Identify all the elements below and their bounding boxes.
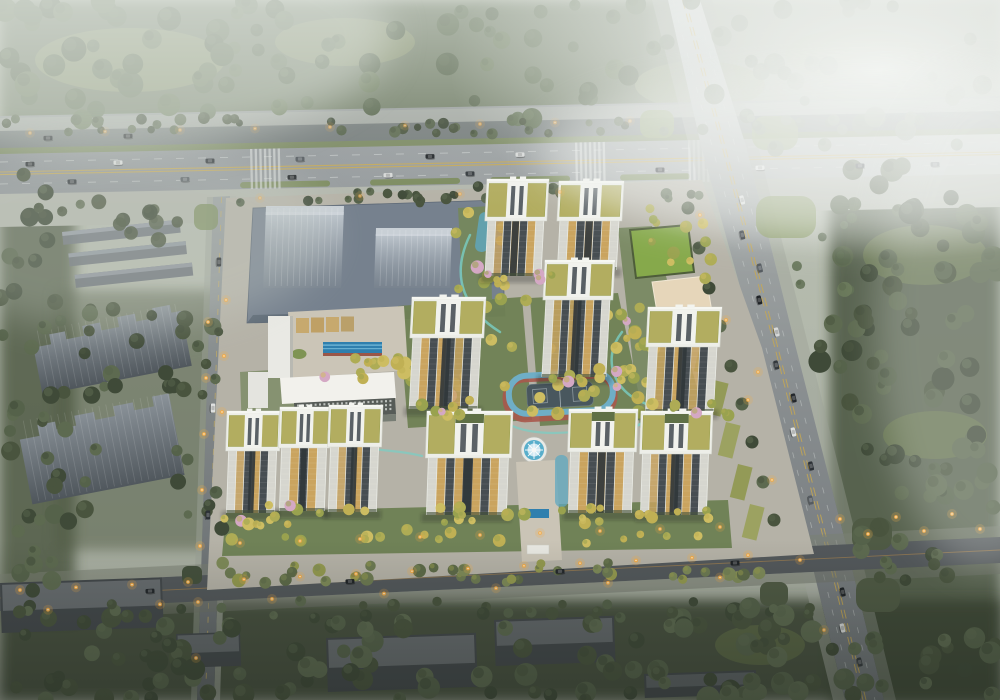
window — [341, 402, 343, 404]
window — [389, 408, 391, 410]
window — [376, 401, 378, 403]
tree-highlight — [35, 515, 41, 521]
streetlight-core — [839, 518, 840, 519]
tree-highlight — [379, 356, 385, 362]
tree-highlight — [59, 423, 67, 431]
tree-highlight — [528, 406, 534, 412]
crown-box — [358, 403, 364, 407]
tree-highlight — [896, 487, 903, 494]
tree-highlight — [80, 348, 86, 354]
tree-highlight — [23, 510, 30, 517]
tree-highlight — [872, 519, 882, 529]
tree-highlight — [227, 534, 233, 540]
dusk-vignette — [0, 540, 1000, 700]
tree-highlight — [854, 406, 864, 416]
roof-garden-dark — [592, 412, 615, 421]
tree-highlight — [501, 382, 506, 387]
crown-center — [244, 414, 263, 448]
tree-highlight — [722, 409, 726, 413]
aerial-render-stage — [0, 0, 1000, 700]
tree-highlight — [633, 392, 640, 399]
tree-highlight — [10, 401, 18, 409]
window — [319, 403, 321, 405]
tree-highlight — [881, 454, 887, 460]
tree-highlight — [199, 391, 204, 396]
tree-highlight — [402, 525, 408, 531]
tree-highlight — [624, 335, 628, 339]
tree-highlight — [5, 426, 11, 432]
window — [297, 405, 299, 407]
aerial-render — [0, 0, 1000, 700]
crown-box — [679, 409, 686, 413]
window — [363, 401, 365, 403]
streetlight-core — [747, 399, 748, 400]
roof-garden-panel — [312, 412, 328, 444]
tree-highlight — [579, 390, 585, 396]
tree-highlight — [236, 516, 242, 522]
window — [315, 404, 317, 406]
crown-box — [247, 409, 253, 413]
window — [389, 404, 391, 406]
window — [385, 404, 387, 406]
streetlight-core — [539, 532, 540, 533]
tree-highlight — [78, 502, 87, 511]
tree-highlight — [614, 383, 618, 387]
tree-highlight — [758, 477, 765, 484]
tree-highlight — [535, 393, 541, 399]
window — [372, 401, 374, 403]
streetlight-core — [207, 321, 208, 322]
tower-11 — [635, 409, 715, 523]
tree-highlight — [612, 367, 618, 373]
tower-9 — [421, 409, 515, 523]
crown-parapet — [641, 411, 713, 413]
tree-highlight — [675, 509, 679, 513]
tree-highlight — [703, 507, 707, 511]
window — [332, 403, 334, 405]
tree-highlight — [160, 366, 168, 374]
crown-slot — [472, 424, 479, 452]
streetlight-core — [203, 433, 204, 434]
tree-highlight — [59, 387, 65, 393]
tree-highlight — [553, 408, 560, 415]
window — [385, 400, 387, 402]
tree-highlight — [13, 526, 20, 533]
tree-highlight — [321, 372, 326, 377]
tree-highlight — [47, 506, 57, 516]
tree-highlight — [647, 399, 653, 405]
crown-box — [349, 403, 355, 407]
tree-highlight — [664, 533, 668, 537]
rooftop-lap-pool — [323, 342, 382, 353]
car — [204, 510, 210, 520]
tree-highlight — [183, 454, 189, 460]
tree-highlight — [559, 507, 563, 511]
tree-highlight — [466, 396, 471, 401]
central-fountain — [521, 437, 547, 463]
tree-highlight — [737, 399, 744, 406]
streetlight-core — [719, 526, 720, 527]
tree-highlight — [104, 366, 113, 375]
roof-garden-panel — [330, 410, 347, 443]
tree-highlight — [769, 515, 776, 522]
tree-highlight — [636, 511, 641, 516]
streetlight-core — [479, 534, 480, 535]
tower-8 — [323, 403, 385, 520]
tree-highlight — [630, 327, 637, 334]
tree-highlight — [211, 487, 217, 493]
tree-highlight — [193, 341, 199, 347]
roof-garden-panel — [261, 416, 278, 447]
streetlight-core — [419, 536, 420, 537]
roof-garden-panel — [483, 416, 510, 454]
crown-slot — [678, 424, 684, 448]
window — [323, 403, 325, 405]
tree-highlight — [253, 521, 257, 525]
crown-parapet — [280, 407, 331, 409]
tree-highlight — [81, 477, 87, 483]
base-shrubs — [226, 510, 274, 513]
tree-highlight — [726, 361, 733, 368]
tree-highlight — [85, 388, 94, 397]
crown-box — [594, 407, 601, 411]
tree-highlight — [442, 519, 446, 523]
streetlight-core — [201, 489, 202, 490]
streetlight-core — [221, 411, 222, 412]
tree-highlight — [282, 534, 286, 538]
streetlight-core — [599, 530, 600, 531]
streetlight-core — [659, 528, 660, 529]
tree-highlight — [417, 401, 422, 406]
tree-highlight — [704, 514, 709, 519]
tree-highlight — [211, 374, 216, 379]
tree-highlight — [508, 342, 513, 347]
tree-highlight — [835, 361, 842, 368]
tree-highlight — [316, 510, 320, 514]
amenity-wing-shadow — [290, 316, 293, 378]
window — [381, 400, 383, 402]
tree-highlight — [618, 376, 622, 380]
crown-box — [256, 409, 262, 413]
base-shrubs — [426, 512, 506, 515]
tree-highlight — [565, 371, 571, 377]
tree-highlight — [626, 365, 632, 371]
tree-highlight — [172, 446, 178, 452]
tree-highlight — [221, 515, 225, 519]
tree-highlight — [862, 444, 868, 450]
pool-lane — [323, 348, 382, 349]
tree-highlight — [519, 509, 525, 515]
roof-garden-dark — [665, 414, 689, 423]
tree-highlight — [439, 408, 443, 412]
tree-highlight — [185, 511, 189, 515]
tree-highlight — [576, 374, 580, 378]
tree-highlight — [52, 469, 60, 477]
roof-garden-panel — [642, 416, 665, 450]
tree-highlight — [376, 533, 381, 538]
tree-highlight — [587, 504, 592, 509]
crown-slot — [460, 424, 467, 452]
tree-highlight — [640, 338, 647, 345]
tree-highlight — [285, 521, 289, 525]
tree-highlight — [172, 475, 180, 483]
tree-highlight — [392, 357, 399, 364]
tree-highlight — [216, 522, 223, 529]
tree-highlight — [469, 517, 473, 521]
amenity-far-west-wing — [248, 372, 268, 408]
tree-highlight — [595, 364, 601, 370]
roof-garden-panel — [688, 416, 711, 450]
crown-center — [296, 410, 314, 445]
tree-highlight — [271, 512, 276, 517]
tree-highlight — [357, 369, 362, 374]
tree-highlight — [549, 375, 553, 379]
car-roof — [211, 406, 214, 410]
tree-highlight — [487, 335, 493, 341]
tree-highlight — [815, 341, 822, 348]
tree-highlight — [436, 536, 440, 540]
entry-water-feature — [555, 455, 568, 507]
tree-highlight — [647, 512, 653, 518]
tree-highlight — [100, 382, 105, 387]
car — [209, 403, 215, 413]
crown-box — [307, 405, 312, 409]
crown-box — [606, 407, 613, 411]
tower-10 — [563, 407, 640, 521]
tree-highlight — [843, 342, 853, 352]
tree-highlight — [109, 379, 117, 387]
window — [389, 400, 391, 402]
roof-garden-panel — [363, 410, 380, 443]
tree-highlight — [365, 359, 369, 363]
tree-highlight — [621, 536, 625, 540]
tree-highlight — [695, 532, 699, 536]
tree-highlight — [39, 412, 44, 417]
tree-highlight — [437, 504, 442, 509]
tree-highlight — [811, 352, 822, 363]
roof-garden-panel — [281, 412, 297, 444]
tree-highlight — [42, 452, 49, 459]
tree-highlight — [351, 354, 356, 359]
tree-highlight — [502, 509, 508, 515]
tree-highlight — [44, 388, 53, 397]
crown-parapet — [329, 405, 383, 407]
crown-parapet — [227, 411, 281, 413]
tree-highlight — [692, 408, 698, 414]
crown-slot — [669, 424, 675, 448]
window — [354, 402, 356, 404]
tree-highlight — [431, 407, 436, 412]
streetlight-core — [867, 533, 868, 534]
tree-highlight — [205, 500, 211, 506]
amenity-oval-lawn — [292, 349, 307, 359]
tree-highlight — [91, 444, 97, 450]
tree-highlight — [843, 395, 852, 404]
streetlight-core — [223, 355, 224, 356]
crown-slot — [595, 422, 600, 446]
roof-garden-panel — [613, 414, 635, 448]
tree-highlight — [168, 379, 176, 387]
tree-highlight — [637, 531, 641, 535]
tree-highlight — [286, 501, 292, 507]
streetlight-core — [771, 479, 772, 480]
tree-highlight — [671, 400, 676, 405]
tree-highlight — [459, 512, 463, 516]
tree-highlight — [629, 373, 635, 379]
tree-highlight — [215, 328, 220, 333]
tower-7 — [274, 405, 333, 519]
amenity-west-wing — [268, 316, 292, 378]
window — [385, 408, 387, 410]
tree-highlight — [130, 334, 138, 342]
tree-highlight — [243, 518, 249, 524]
streetlight-core — [757, 371, 758, 372]
tree-highlight — [580, 515, 584, 519]
tree-highlight — [455, 502, 461, 508]
fountain-sculpture — [532, 448, 537, 453]
crown-box — [299, 405, 304, 409]
tree-highlight — [361, 507, 365, 511]
window — [367, 401, 369, 403]
tree-highlight — [578, 378, 583, 383]
roof-garden-panel — [228, 416, 245, 447]
streetlight-core — [895, 516, 896, 517]
tree-highlight — [358, 374, 364, 380]
tree-highlight — [178, 383, 186, 391]
tree-highlight — [3, 443, 13, 453]
streetlight-core — [923, 530, 924, 531]
streetlight-core — [205, 377, 206, 378]
roof-garden-panel — [570, 414, 592, 448]
window — [337, 403, 339, 405]
tree-highlight — [612, 343, 618, 349]
crown-center — [346, 408, 365, 444]
tree-highlight — [597, 505, 601, 509]
tree-highlight — [849, 321, 858, 330]
tree-highlight — [708, 400, 713, 405]
tree-highlight — [596, 518, 600, 522]
tree-highlight — [589, 386, 595, 392]
tree-highlight — [62, 514, 71, 523]
tree-highlight — [257, 522, 261, 526]
streetlight-core — [359, 538, 360, 539]
pool-lane — [323, 345, 382, 346]
tree-highlight — [48, 479, 56, 487]
amenity-court-tan — [296, 318, 309, 333]
crown-parapet — [569, 409, 638, 411]
window — [345, 402, 347, 404]
tower-6 — [221, 409, 283, 521]
tree-highlight — [202, 360, 207, 365]
tree-highlight — [266, 502, 270, 506]
tree-highlight — [26, 341, 34, 349]
tree-highlight — [854, 527, 864, 537]
crown-slot — [605, 422, 610, 446]
car-roof — [206, 513, 209, 517]
tree-highlight — [449, 403, 454, 408]
tree-highlight — [344, 504, 350, 510]
tree-highlight — [446, 528, 452, 534]
tree-highlight — [747, 437, 754, 444]
roof-garden-panel — [428, 416, 455, 454]
crown-box — [473, 409, 482, 413]
tree-highlight — [868, 358, 875, 365]
tree-highlight — [564, 377, 570, 383]
